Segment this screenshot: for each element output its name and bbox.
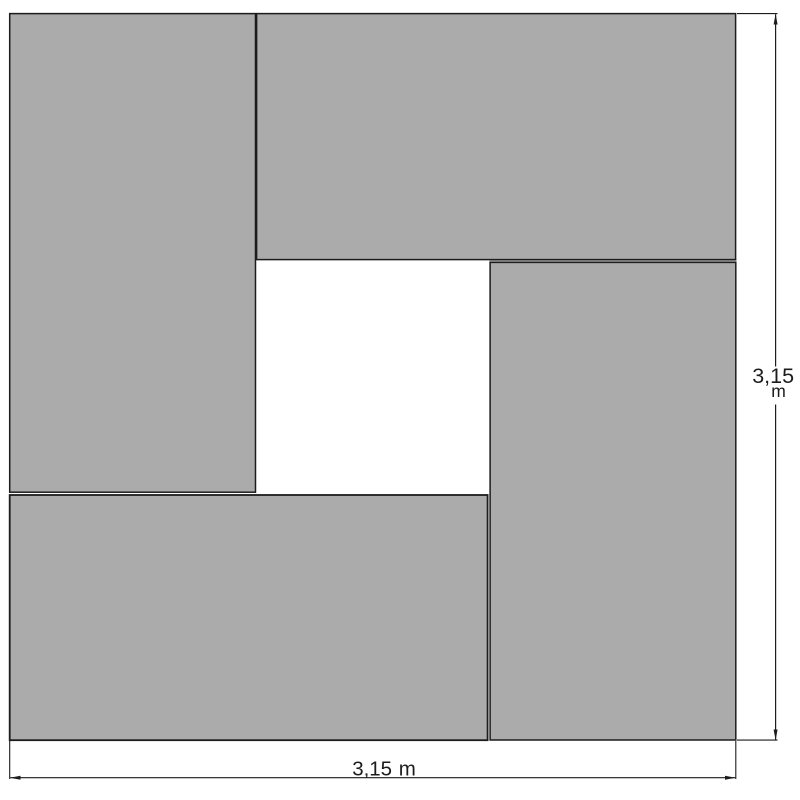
svg-text:m: m xyxy=(771,381,786,401)
svg-text:m: m xyxy=(399,757,416,780)
svg-text:3,15: 3,15 xyxy=(352,757,392,780)
